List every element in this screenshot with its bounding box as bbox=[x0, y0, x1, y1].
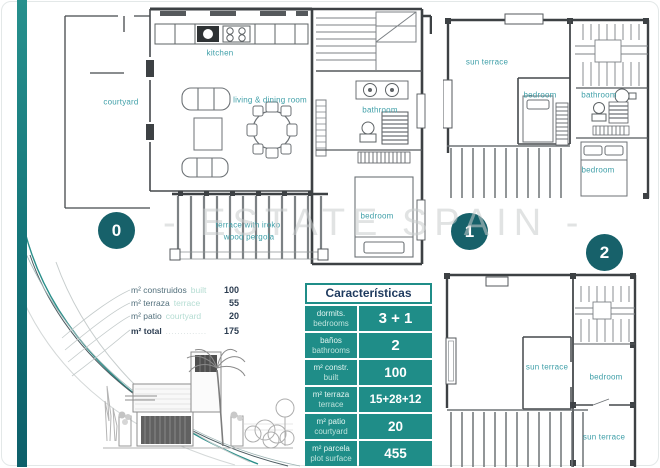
stairs bbox=[575, 24, 648, 86]
floor-badge-1: 1 bbox=[451, 213, 488, 250]
table-row-value: 2 bbox=[359, 333, 432, 358]
right-bushes bbox=[243, 399, 294, 448]
terrace-window bbox=[446, 338, 456, 384]
measure-row: m² terraza terrace 55 bbox=[131, 297, 239, 310]
measure-label-en: built bbox=[191, 284, 207, 297]
label-es: m² patio bbox=[317, 417, 346, 427]
table-row-label: dormits. bedrooms bbox=[305, 306, 357, 331]
room-label-sun-terrace-2b: sun terrace bbox=[583, 433, 625, 442]
room-label-living-dining: living & dining room bbox=[233, 96, 307, 105]
table-row-bedrooms: dormits. bedrooms 3 + 1 bbox=[305, 306, 432, 331]
label-es: m² parcela bbox=[312, 444, 350, 454]
sink-icon bbox=[197, 26, 219, 42]
measure-label-en: terrace bbox=[174, 297, 200, 310]
coffee-table bbox=[194, 118, 222, 150]
hatched-strip bbox=[358, 152, 410, 163]
house-sketch bbox=[95, 346, 305, 464]
table-row-value: 15+28+12 bbox=[359, 387, 432, 412]
measure-label: m² patio bbox=[131, 310, 162, 323]
courtyard-walls bbox=[65, 16, 150, 208]
room-label-bedroom-1b: bedroom bbox=[582, 166, 615, 175]
sun-terrace-walls bbox=[523, 337, 571, 409]
left-trees bbox=[105, 386, 117, 441]
label-en: bathrooms bbox=[312, 346, 350, 356]
stairs bbox=[575, 286, 635, 342]
table-row-value: 3 + 1 bbox=[359, 306, 432, 331]
table-row-label: m² parcela plot surface bbox=[305, 441, 357, 466]
house-body bbox=[125, 352, 221, 446]
label-es: m² constr. bbox=[313, 363, 348, 373]
table-row-label: m² constr. built bbox=[305, 360, 357, 385]
measure-row-total: m² total .............. 175 bbox=[131, 325, 239, 339]
measure-label-en: courtyard bbox=[166, 310, 201, 323]
label-es: baños bbox=[320, 336, 342, 346]
table-row-label: m² terraza terrace bbox=[305, 387, 357, 412]
railing bbox=[447, 410, 588, 467]
room-label-sun-terrace-1: sun terrace bbox=[466, 58, 508, 67]
table-row-courtyard: m² patio courtyard 20 bbox=[305, 414, 432, 439]
left-pillar bbox=[119, 412, 132, 447]
terrace-note-line1: terrace with iroko bbox=[216, 221, 281, 230]
toilet-icon bbox=[360, 122, 376, 142]
bathroom-sinks-icon bbox=[356, 81, 408, 99]
shower-icon bbox=[382, 112, 408, 144]
label-en: plot surface bbox=[310, 454, 351, 464]
table-row-terrace: m² terraza terrace 15+28+12 bbox=[305, 387, 432, 412]
table-row-label: m² patio courtyard bbox=[305, 414, 357, 439]
measure-label: m² construidos bbox=[131, 284, 187, 297]
table-row-plot: m² parcela plot surface 455 bbox=[305, 441, 432, 466]
left-accent-bar bbox=[17, 0, 27, 467]
measure-leader: .............. bbox=[166, 326, 207, 339]
label-en: terrace bbox=[319, 400, 344, 410]
measure-value: 100 bbox=[224, 284, 239, 297]
bed-left bbox=[523, 96, 553, 142]
right-pillar bbox=[231, 412, 244, 447]
label-en: courtyard bbox=[314, 427, 347, 437]
label-es: dormits. bbox=[317, 309, 345, 319]
measure-label: m² total bbox=[131, 325, 162, 338]
floorplan-sheet: { "page": { "watermark": "- ESTATE SPAIN… bbox=[0, 0, 660, 467]
bathroom-sink-icon bbox=[615, 89, 636, 103]
room-label-bathroom-1: bathroom bbox=[581, 91, 616, 100]
label-en: built bbox=[324, 373, 339, 383]
terrace-note-line2: wood pergola bbox=[224, 233, 274, 242]
radiator bbox=[556, 103, 568, 145]
measure-row: m² construidos built 100 bbox=[131, 284, 239, 297]
measure-row: m² patio courtyard 20 bbox=[131, 310, 239, 323]
upper-cabinets bbox=[160, 11, 308, 16]
table-row-bathrooms: baños bathrooms 2 bbox=[305, 333, 432, 358]
floor-badge-0: 0 bbox=[98, 212, 135, 249]
measurements-list: m² construidos built 100 m² terraza terr… bbox=[131, 284, 239, 339]
measure-label: m² terraza bbox=[131, 297, 170, 310]
room-label-courtyard: courtyard bbox=[103, 98, 138, 107]
dining-table bbox=[247, 102, 297, 158]
label-es: m² terraza bbox=[313, 390, 349, 400]
table-row-value: 455 bbox=[359, 441, 432, 466]
room-label-bathroom-0: bathroom bbox=[362, 106, 397, 115]
shower-icon bbox=[609, 102, 628, 123]
toilet-icon bbox=[592, 103, 606, 122]
stairs bbox=[316, 12, 416, 70]
characteristics-table: Características dormits. bedrooms 3 + 1 … bbox=[305, 283, 432, 468]
measure-value: 20 bbox=[229, 310, 239, 323]
first-floor-plan bbox=[443, 8, 657, 202]
table-row-value: 20 bbox=[359, 414, 432, 439]
table-row-label: baños bathrooms bbox=[305, 333, 357, 358]
room-label-bedroom-1a: bedroom bbox=[524, 91, 557, 100]
terrace-window bbox=[443, 80, 452, 128]
room-label-bedroom-2: bedroom bbox=[590, 373, 623, 382]
floor-badge-2: 2 bbox=[586, 234, 623, 271]
table-row-built: m² constr. built 100 bbox=[305, 360, 432, 385]
wardrobe bbox=[316, 100, 326, 156]
measure-value: 55 bbox=[229, 297, 239, 310]
hatched-strip bbox=[593, 126, 629, 135]
room-label-bedroom-0: bedroom bbox=[361, 212, 394, 221]
table-row-value: 100 bbox=[359, 360, 432, 385]
railing bbox=[447, 146, 570, 198]
room-label-kitchen: kitchen bbox=[207, 49, 234, 58]
room-label-sun-terrace-2a: sun terrace bbox=[526, 363, 568, 372]
table-title: Características bbox=[305, 283, 432, 304]
measure-value: 175 bbox=[224, 325, 239, 338]
label-en: bedrooms bbox=[313, 319, 349, 329]
